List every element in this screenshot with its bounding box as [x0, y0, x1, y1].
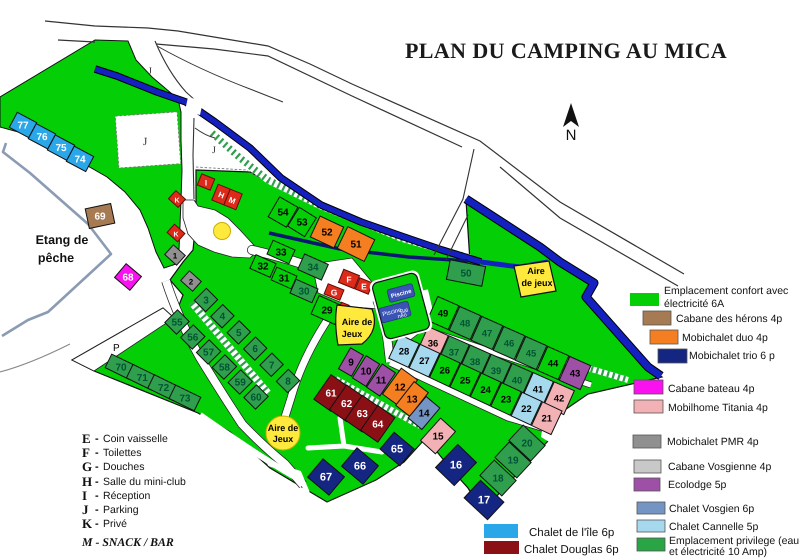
- svg-text:9: 9: [348, 358, 354, 369]
- svg-text:E: E: [82, 431, 91, 446]
- svg-text:24: 24: [480, 385, 491, 396]
- svg-text:5: 5: [236, 328, 242, 339]
- svg-text:7: 7: [269, 360, 275, 371]
- svg-text:-: -: [95, 433, 99, 445]
- svg-text:3: 3: [203, 296, 209, 307]
- svg-text:45: 45: [526, 349, 537, 360]
- svg-text:et électricité 10 Amp): et électricité 10 Amp): [669, 546, 767, 558]
- svg-text:6: 6: [252, 344, 258, 355]
- svg-text:59: 59: [235, 378, 247, 389]
- svg-text:Chalet Cannelle 5p: Chalet Cannelle 5p: [669, 521, 758, 533]
- svg-text:J: J: [143, 136, 148, 148]
- svg-text:56: 56: [187, 333, 199, 344]
- svg-text:J: J: [82, 502, 89, 517]
- svg-text:66: 66: [354, 461, 366, 473]
- svg-text:K: K: [173, 232, 178, 239]
- svg-text:Privé: Privé: [103, 518, 127, 530]
- svg-text:37: 37: [449, 348, 460, 359]
- svg-text:Etang de: Etang de: [36, 233, 89, 247]
- svg-text:28: 28: [399, 347, 410, 358]
- svg-text:58: 58: [219, 363, 231, 374]
- svg-text:27: 27: [419, 356, 430, 367]
- svg-text:42: 42: [554, 394, 565, 405]
- svg-text:Aire de: Aire de: [268, 423, 299, 433]
- svg-text:-: -: [95, 518, 99, 530]
- svg-text:75: 75: [55, 143, 67, 154]
- svg-text:60: 60: [250, 393, 262, 404]
- svg-text:-: -: [95, 504, 99, 516]
- svg-text:57: 57: [203, 348, 215, 359]
- svg-text:65: 65: [391, 444, 403, 456]
- svg-text:2: 2: [189, 278, 194, 287]
- svg-text:Cabane bateau 4p: Cabane bateau 4p: [668, 383, 755, 395]
- svg-text:-: -: [95, 490, 99, 502]
- svg-text:26: 26: [440, 366, 451, 377]
- svg-text:Ecolodge 5p: Ecolodge 5p: [668, 479, 727, 491]
- svg-text:14: 14: [418, 409, 430, 420]
- svg-text:74: 74: [74, 154, 86, 165]
- svg-text:K: K: [174, 198, 179, 205]
- svg-text:36: 36: [428, 339, 439, 350]
- svg-text:53: 53: [296, 218, 308, 229]
- svg-text:Chalet de l'île 6p: Chalet de l'île 6p: [529, 527, 614, 539]
- svg-text:Mobichalet duo 4p: Mobichalet duo 4p: [682, 332, 768, 344]
- svg-text:Mobilhome Titania 4p: Mobilhome Titania 4p: [668, 402, 768, 414]
- svg-text:38: 38: [470, 357, 481, 368]
- svg-text:E: E: [361, 282, 367, 292]
- svg-text:de jeux: de jeux: [521, 278, 552, 288]
- svg-text:39: 39: [491, 366, 502, 377]
- svg-text:Coin vaisselle: Coin vaisselle: [103, 433, 168, 445]
- svg-text:25: 25: [460, 375, 471, 386]
- svg-text:Parking: Parking: [103, 504, 139, 516]
- svg-text:10: 10: [360, 367, 372, 378]
- svg-text:I: I: [205, 179, 207, 188]
- svg-text:Emplacement confort avec: Emplacement confort avec: [664, 285, 788, 297]
- svg-text:Aire: Aire: [527, 266, 545, 276]
- svg-text:8: 8: [285, 377, 291, 388]
- svg-text:32: 32: [257, 262, 269, 273]
- svg-text:49: 49: [438, 309, 449, 320]
- svg-text:48: 48: [460, 319, 471, 330]
- svg-text:-: -: [95, 476, 99, 488]
- svg-text:Salle du mini-club: Salle du mini-club: [103, 476, 186, 488]
- svg-text:41: 41: [533, 385, 544, 396]
- svg-text:71: 71: [137, 373, 149, 384]
- svg-text:40: 40: [512, 375, 523, 386]
- svg-text:4: 4: [220, 312, 226, 323]
- svg-text:G: G: [82, 459, 92, 474]
- svg-text:I: I: [82, 488, 87, 503]
- svg-text:-: -: [95, 447, 99, 459]
- svg-text:46: 46: [504, 339, 515, 350]
- svg-text:K: K: [82, 516, 93, 531]
- svg-text:Aire de: Aire de: [342, 317, 373, 327]
- svg-text:22: 22: [521, 404, 532, 415]
- svg-text:Cabane des hérons 4p: Cabane des hérons 4p: [676, 313, 782, 325]
- svg-text:76: 76: [36, 132, 48, 143]
- svg-text:23: 23: [501, 395, 512, 406]
- svg-text:Toilettes: Toilettes: [103, 447, 142, 459]
- svg-text:30: 30: [298, 287, 310, 298]
- svg-text:électricité 6A: électricité 6A: [664, 298, 724, 310]
- svg-text:72: 72: [158, 383, 170, 394]
- svg-text:73: 73: [179, 393, 191, 404]
- svg-text:12: 12: [394, 383, 406, 394]
- svg-text:31: 31: [278, 274, 290, 285]
- svg-text:13: 13: [406, 395, 418, 406]
- svg-text:J: J: [212, 145, 216, 156]
- svg-text:67: 67: [320, 472, 332, 484]
- svg-text:63: 63: [357, 409, 369, 420]
- svg-text:Mobichalet trio 6 p: Mobichalet trio 6 p: [689, 350, 775, 362]
- svg-text:64: 64: [372, 419, 384, 430]
- svg-text:68: 68: [122, 273, 134, 284]
- svg-text:PLAN DU CAMPING AU MICA: PLAN DU CAMPING AU MICA: [405, 38, 727, 63]
- svg-text:62: 62: [341, 399, 353, 410]
- svg-text:G: G: [331, 288, 338, 298]
- svg-text:47: 47: [482, 329, 493, 340]
- svg-text:54: 54: [277, 208, 289, 219]
- svg-text:Réception: Réception: [103, 490, 150, 502]
- svg-text:Mobichalet PMR 4p: Mobichalet PMR 4p: [667, 436, 759, 448]
- svg-text:34: 34: [307, 263, 319, 274]
- svg-text:21: 21: [542, 414, 553, 425]
- svg-text:J: J: [148, 66, 152, 77]
- svg-text:44: 44: [548, 359, 559, 370]
- svg-text:1: 1: [173, 252, 178, 261]
- svg-text:50: 50: [460, 269, 472, 280]
- svg-text:17: 17: [478, 495, 490, 507]
- svg-text:33: 33: [275, 248, 287, 259]
- svg-text:Chalet Douglas 6p: Chalet Douglas 6p: [524, 544, 619, 556]
- svg-text:43: 43: [570, 369, 581, 380]
- svg-text:-: -: [95, 461, 99, 473]
- svg-text:M - SNACK / BAR: M - SNACK / BAR: [81, 535, 174, 549]
- svg-text:P: P: [113, 343, 120, 354]
- svg-text:19: 19: [507, 456, 519, 467]
- svg-text:29: 29: [321, 306, 333, 317]
- svg-text:Chalet Vosgien 6p: Chalet Vosgien 6p: [669, 503, 754, 515]
- svg-text:61: 61: [325, 389, 337, 400]
- svg-text:51: 51: [350, 240, 362, 251]
- svg-text:N: N: [566, 127, 577, 144]
- svg-text:Cabane Vosgienne 4p: Cabane Vosgienne 4p: [668, 461, 771, 473]
- svg-text:pêche: pêche: [38, 251, 74, 265]
- svg-text:20: 20: [521, 439, 533, 450]
- svg-text:77: 77: [17, 121, 29, 132]
- svg-text:52: 52: [321, 228, 333, 239]
- svg-text:70: 70: [115, 363, 127, 374]
- svg-text:15: 15: [432, 432, 444, 443]
- svg-text:Jeux: Jeux: [273, 434, 294, 444]
- svg-text:Jeux: Jeux: [342, 329, 363, 339]
- svg-text:11: 11: [376, 376, 387, 387]
- svg-text:18: 18: [492, 474, 504, 485]
- svg-text:55: 55: [171, 318, 183, 329]
- svg-text:69: 69: [94, 212, 106, 223]
- svg-text:F: F: [82, 445, 90, 460]
- svg-text:H: H: [82, 474, 92, 489]
- svg-text:16: 16: [450, 460, 462, 472]
- svg-text:F: F: [346, 275, 351, 285]
- svg-text:Douches: Douches: [103, 461, 144, 473]
